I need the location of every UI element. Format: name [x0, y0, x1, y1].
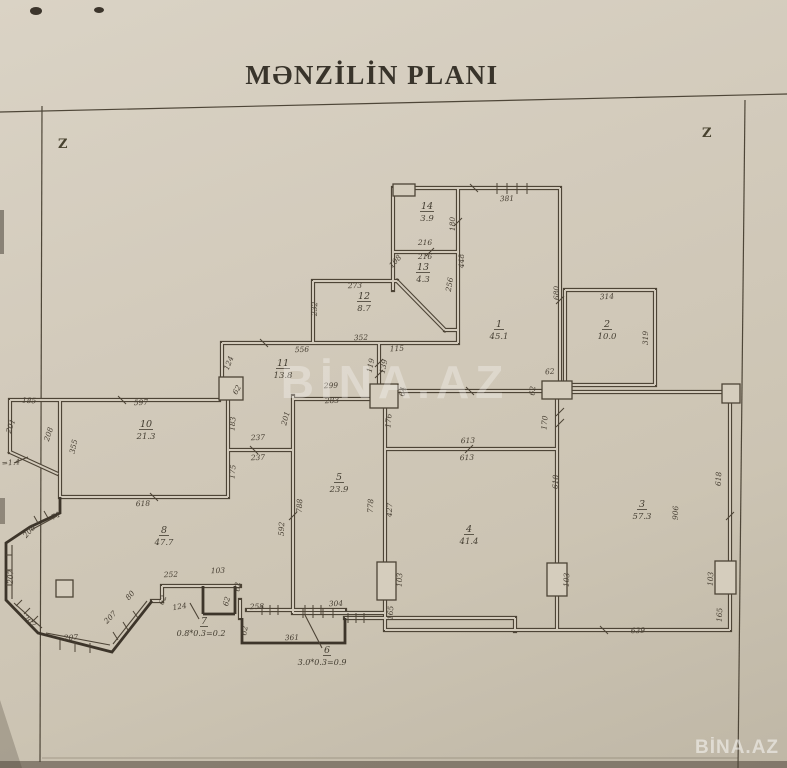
dimension-label: 185	[22, 396, 37, 406]
dimension-label: 175	[227, 464, 237, 479]
room-number: 13	[417, 262, 429, 273]
dimension-label: 256	[444, 277, 456, 294]
room-area: 41.4	[459, 537, 479, 547]
dimension-label: 352	[354, 333, 369, 343]
room-area: 45.1	[489, 332, 509, 342]
room-number: 6	[324, 645, 330, 656]
dimension-label: 207	[21, 612, 39, 629]
dimension-label: 613	[461, 436, 476, 446]
room-area-formula: 3.0*0.3=0.9	[298, 658, 347, 667]
dimension-label: 778	[366, 498, 376, 513]
dimension-label: 304	[329, 599, 344, 609]
dimension-label: 237	[250, 433, 266, 443]
window-and-break-ticks	[6, 183, 734, 653]
dimension-label: =1.4	[1, 457, 20, 468]
room-area: 47.7	[154, 538, 175, 548]
room-number: 1	[496, 319, 502, 330]
floor-plan-canvas: MƏNZİLİN PLANI Z Z	[0, 0, 787, 768]
dimension-label: 207	[6, 569, 16, 585]
dimension-label: 237	[250, 453, 266, 463]
dimension-label: 381	[500, 194, 515, 203]
dimension-label: 427	[385, 502, 395, 518]
room-number: 8	[161, 525, 167, 536]
room-number: 14	[421, 201, 433, 212]
room-area: 3.9	[420, 214, 434, 224]
dimension-label: 216	[417, 252, 433, 261]
dimension-label: 103	[706, 571, 716, 586]
dimension-label: 314	[599, 292, 614, 302]
dimension-label: 273	[347, 281, 363, 291]
dimension-label: 319	[641, 331, 650, 346]
watermark-center: BİNA.AZ	[281, 356, 510, 408]
dimension-label: 176	[383, 413, 393, 428]
dimension-label: 62	[233, 581, 243, 592]
walls	[10, 188, 730, 631]
room-area: 57.3	[633, 512, 652, 522]
room-number: 7	[201, 616, 208, 627]
dimension-label: 207	[101, 609, 118, 626]
room-area: 10.0	[598, 332, 618, 342]
dimension-label: 556	[295, 345, 310, 355]
watermark-corner: BİNA.AZ	[695, 737, 779, 758]
dimension-label: 103	[211, 566, 226, 576]
dimension-label: 165	[715, 607, 725, 622]
room-number: 5	[336, 472, 342, 483]
dimension-label: 906	[671, 505, 681, 520]
dimension-label: 618	[551, 474, 561, 489]
dimension-label: 639	[631, 626, 646, 636]
dimension-label: 80	[124, 589, 137, 602]
room-area: 4.3	[415, 275, 430, 285]
dimension-label: 680	[552, 286, 561, 301]
dimension-label: 62	[239, 625, 250, 636]
dimension-label: 207	[63, 633, 79, 643]
dimension-label: 62	[528, 385, 538, 396]
room-area-formula: 0.8*0.3=0.2	[177, 629, 226, 638]
dimension-label: 62	[157, 594, 169, 606]
dimension-label: 208	[42, 426, 55, 444]
dimension-label: 258	[249, 602, 265, 612]
orientation-mark-right: Z	[702, 126, 712, 141]
room-number: 10	[140, 419, 152, 430]
dimension-label: 62	[545, 367, 556, 377]
room-number: 4	[465, 524, 472, 535]
dimension-label: 618	[136, 499, 151, 509]
dimension-label: 201	[4, 418, 18, 435]
page-title: MƏNZİLİN PLANI	[245, 60, 498, 90]
room-area: 23.9	[329, 485, 350, 495]
room-area: 8.7	[357, 304, 371, 314]
dimension-label: 115	[389, 344, 404, 354]
room-number: 12	[358, 291, 370, 302]
dimension-label: 165	[386, 605, 396, 620]
dimension-label: 355	[68, 438, 80, 454]
dimension-label: 618	[714, 471, 724, 486]
dimension-label: 788	[295, 498, 305, 513]
room-number: 2	[603, 319, 610, 330]
dimension-label: 183	[227, 416, 237, 431]
watermarks: BİNA.AZ BİNA.AZ	[281, 356, 779, 758]
dimension-label: 103	[562, 572, 572, 587]
room-number: 3	[639, 499, 645, 510]
dimension-label: 252	[163, 570, 179, 580]
dimension-label: 180	[448, 217, 457, 232]
dimension-label: 103	[395, 572, 405, 587]
dimension-label: 201	[279, 410, 292, 427]
dimension-label: 232	[310, 301, 320, 317]
dimension-labels: 3812161802164482561082732323521151191395…	[1, 194, 724, 643]
dimension-label: 108	[387, 253, 403, 270]
dimension-label: 62	[221, 595, 232, 607]
dimension-label: 613	[460, 453, 475, 463]
room-area: 21.3	[136, 432, 156, 442]
dimension-label: 170	[539, 415, 549, 430]
dimension-label: 592	[277, 521, 287, 536]
dimension-label: 124	[172, 601, 188, 612]
dimension-label: 216	[417, 238, 433, 247]
orientation-mark-left: Z	[58, 137, 68, 152]
formula-room-labels: 70.8*0.3=0.263.0*0.3=0.9	[177, 616, 347, 667]
dimension-label: 361	[285, 633, 300, 642]
dimension-label: 448	[457, 254, 466, 270]
dimension-label: 597	[134, 398, 149, 408]
